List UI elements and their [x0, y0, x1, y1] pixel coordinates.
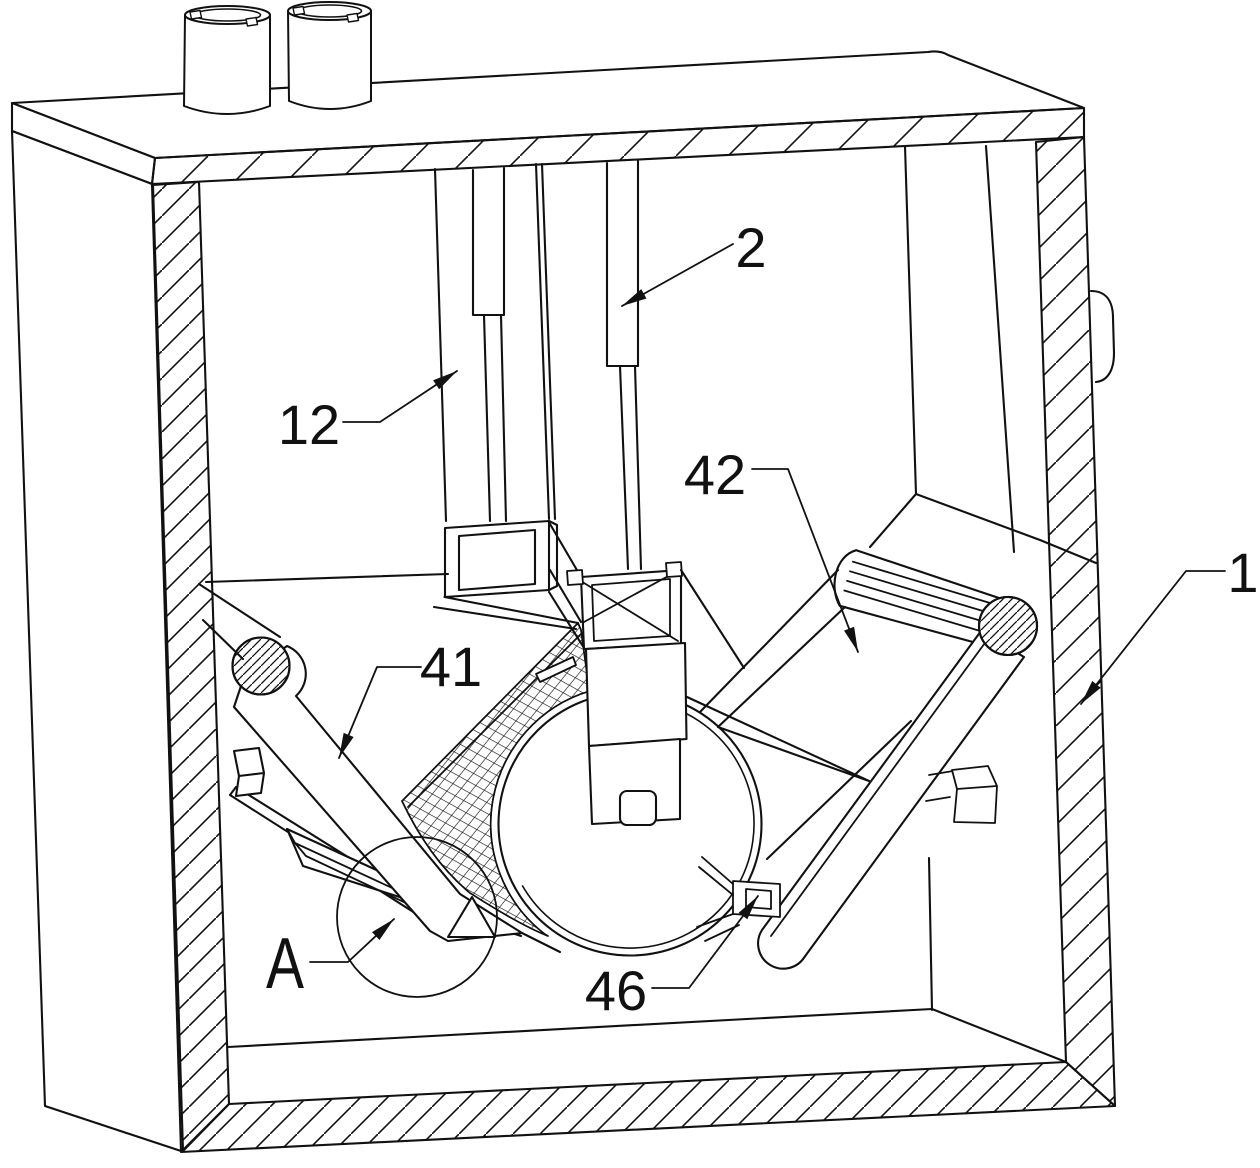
svg-text:1: 1	[1227, 541, 1258, 604]
svg-text:A: A	[266, 924, 304, 1004]
svg-text:2: 2	[735, 216, 766, 279]
svg-text:12: 12	[278, 393, 340, 456]
svg-text:41: 41	[420, 635, 482, 698]
svg-text:42: 42	[684, 443, 746, 506]
svg-text:46: 46	[585, 959, 647, 1022]
